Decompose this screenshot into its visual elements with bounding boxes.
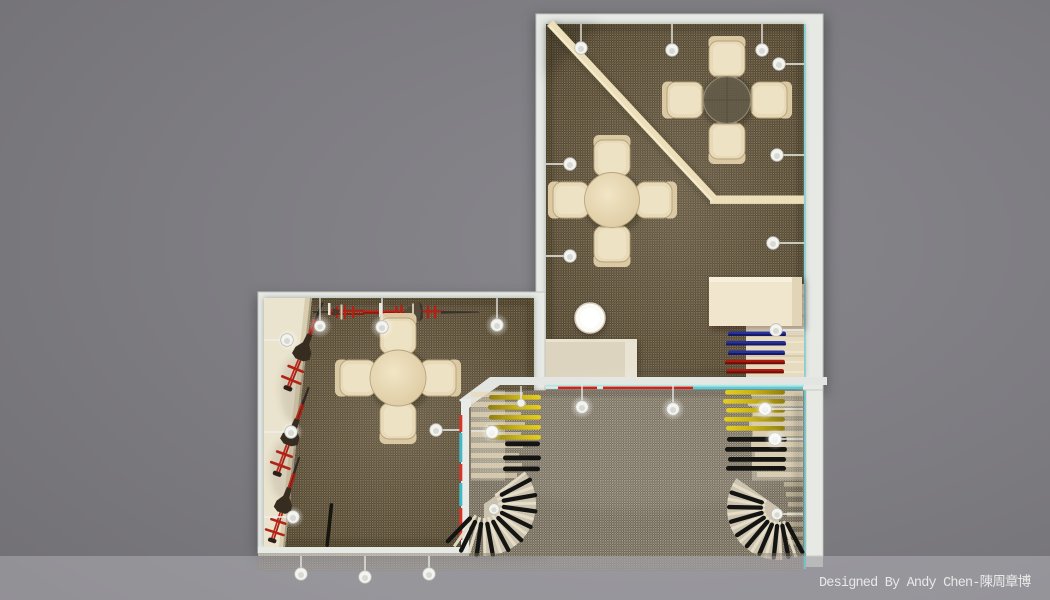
svg-text:Designed By Andy Chen-陳周章博: Designed By Andy Chen-陳周章博 bbox=[819, 573, 1032, 591]
